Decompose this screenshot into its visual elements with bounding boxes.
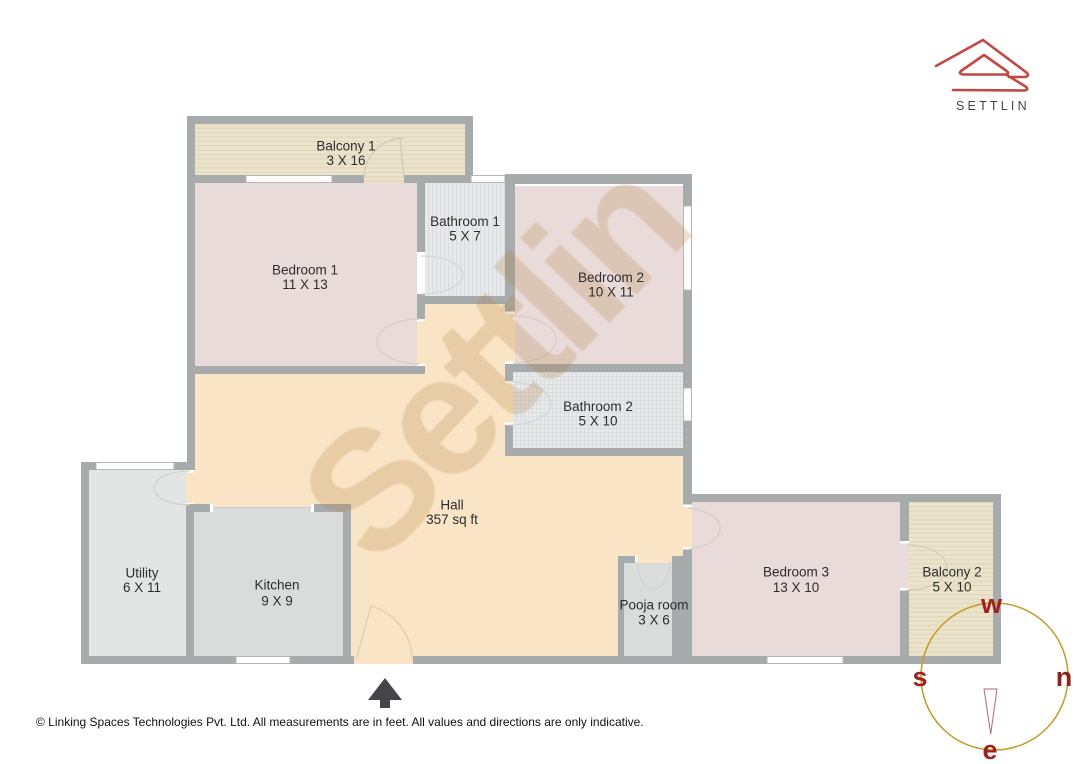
- svg-text:Balcony 1: Balcony 1: [316, 139, 375, 154]
- svg-text:5 X 10: 5 X 10: [578, 414, 617, 429]
- svg-text:SETTLIN: SETTLIN: [956, 99, 1030, 113]
- svg-text:Bathroom 1: Bathroom 1: [430, 214, 500, 229]
- svg-text:Bedroom 3: Bedroom 3: [763, 565, 829, 580]
- svg-text:w: w: [980, 589, 1003, 619]
- svg-text:Hall: Hall: [440, 498, 463, 513]
- svg-text:n: n: [1056, 662, 1073, 692]
- svg-text:Utility: Utility: [126, 566, 159, 581]
- svg-text:Balcony 2: Balcony 2: [922, 565, 981, 580]
- svg-text:Bathroom 2: Bathroom 2: [563, 399, 633, 414]
- svg-text:Kitchen: Kitchen: [254, 578, 299, 593]
- svg-text:5 X 10: 5 X 10: [932, 580, 971, 595]
- svg-text:3 X 6: 3 X 6: [638, 613, 670, 628]
- svg-text:Bedroom 1: Bedroom 1: [272, 263, 338, 278]
- svg-text:10 X 11: 10 X 11: [588, 285, 634, 300]
- svg-text:s: s: [912, 662, 927, 692]
- svg-text:e: e: [982, 735, 997, 764]
- svg-text:Pooja room: Pooja room: [619, 598, 688, 613]
- svg-text:11 X 13: 11 X 13: [282, 277, 328, 292]
- svg-text:357 sq ft: 357 sq ft: [426, 512, 478, 527]
- svg-text:6 X 11: 6 X 11: [123, 580, 161, 595]
- svg-text:5 X 7: 5 X 7: [449, 229, 481, 244]
- svg-text:13 X 10: 13 X 10: [773, 580, 820, 595]
- svg-text:3 X 16: 3 X 16: [326, 153, 365, 168]
- svg-text:9 X 9: 9 X 9: [261, 594, 293, 609]
- svg-text:© Linking Spaces Technologies: © Linking Spaces Technologies Pvt. Ltd. …: [36, 715, 644, 729]
- svg-text:Bedroom 2: Bedroom 2: [578, 270, 644, 285]
